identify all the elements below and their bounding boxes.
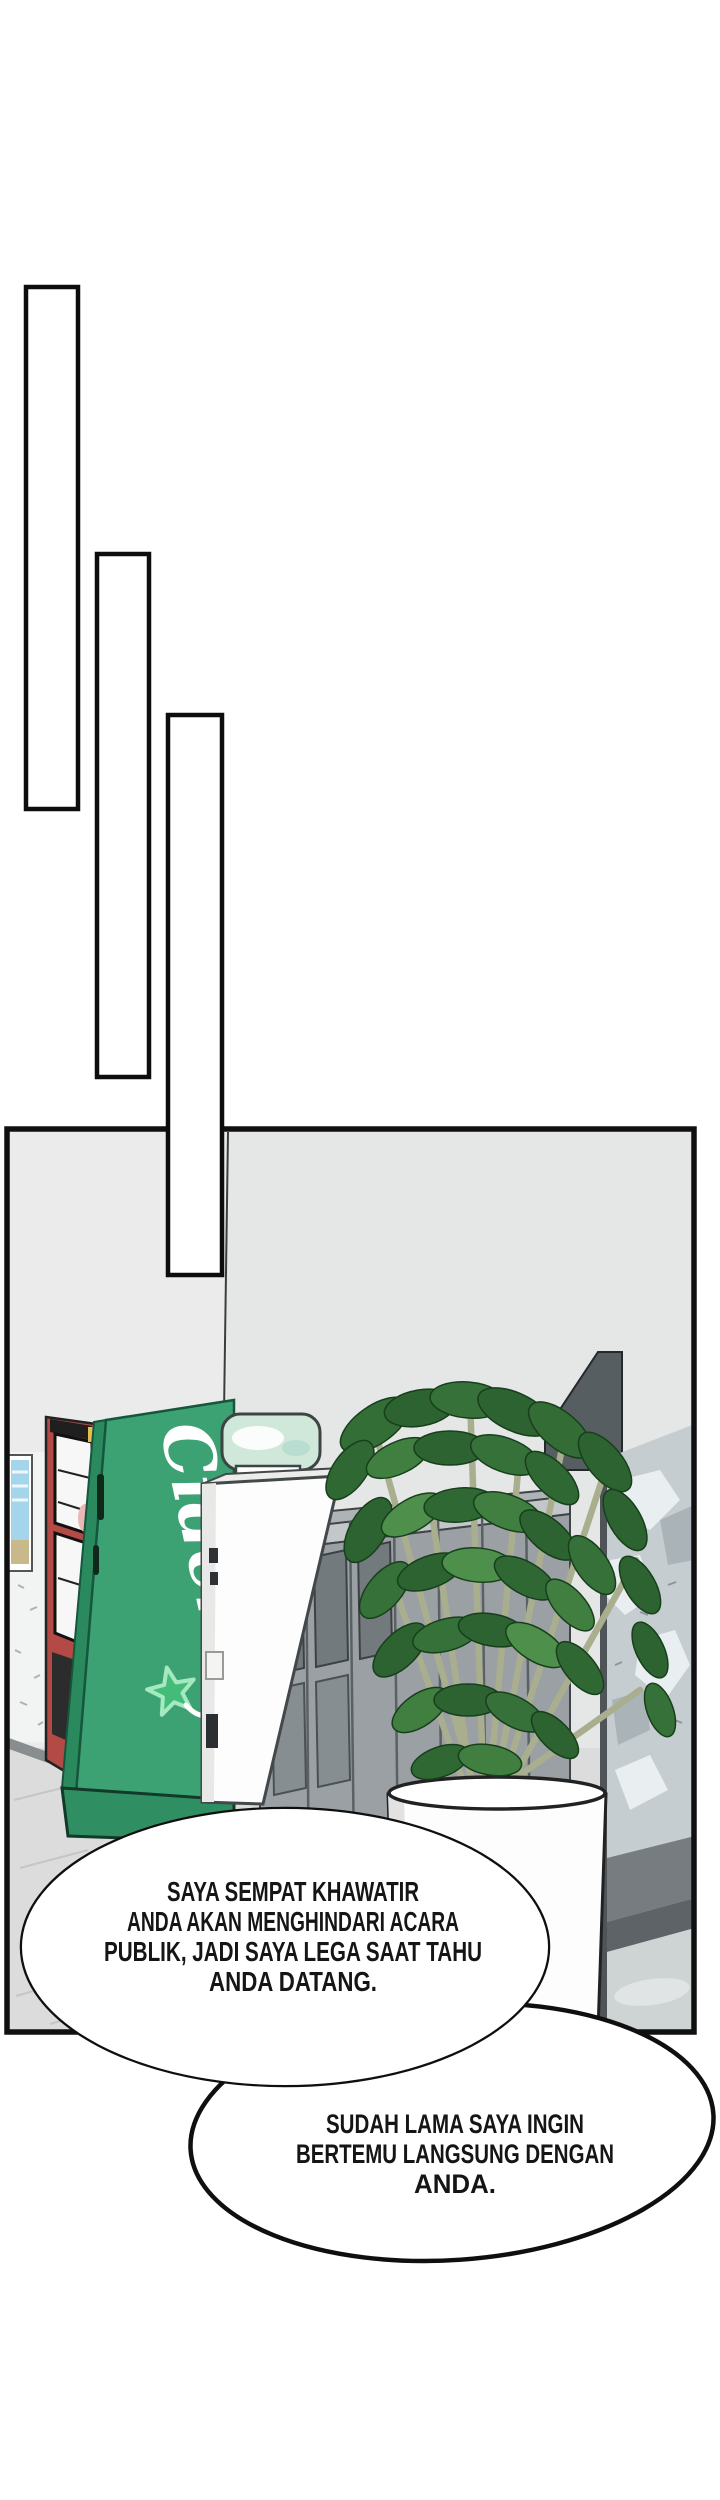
transition-bar-1: [26, 287, 78, 809]
dispenser-tap: [210, 1572, 218, 1585]
comic-page: Cider: [0, 0, 720, 2500]
bubble2-line1: SUDAH LAMA SAYA INGIN: [326, 2109, 584, 2139]
comic-artwork: Cider: [0, 0, 720, 2500]
bubble1-line1: SAYA SEMPAT KHAWATIR: [167, 1876, 419, 1907]
wall-poster: [8, 1455, 32, 1571]
transition-bars: [26, 287, 149, 1077]
bubble2-line2: BERTEMU LANGSUNG DENGAN: [296, 2139, 614, 2169]
bubble2-line3: ANDA.: [414, 2169, 496, 2199]
dispenser-tap: [209, 1548, 218, 1563]
bubble1-line3: PUBLIK, JADI SAYA LEGA SAAT TAHU: [104, 1936, 482, 1967]
bubble1-line4: ANDA DATANG.: [209, 1966, 377, 1997]
transition-bar-2: [97, 554, 149, 1077]
transition-bar-3: [168, 715, 222, 1275]
locker-panel: [316, 1675, 350, 1787]
dispenser-vent: [206, 1714, 218, 1748]
pot-rim: [389, 1777, 605, 1809]
bubble1-line2: ANDA AKAN MENGHINDARI ACARA: [127, 1906, 459, 1937]
